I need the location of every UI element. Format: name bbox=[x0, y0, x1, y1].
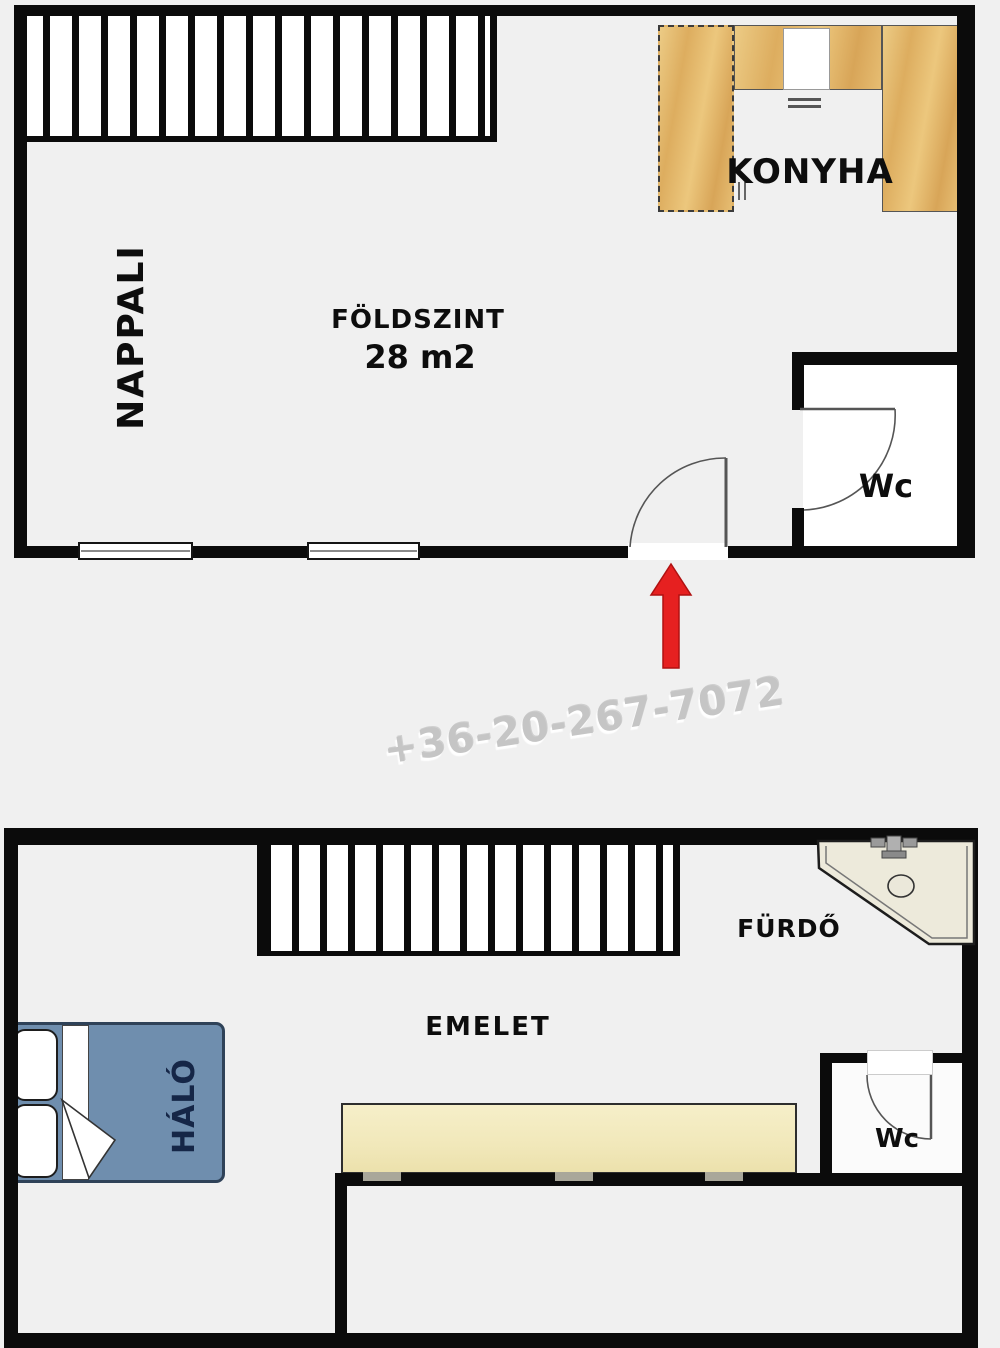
entrance-arrow bbox=[651, 564, 691, 668]
faucet-base bbox=[882, 851, 906, 858]
floor-label-ground: FÖLDSZINT bbox=[268, 305, 568, 335]
faucet-spout bbox=[887, 836, 901, 852]
room-label-bedroom: HÁLÓ bbox=[167, 1026, 203, 1186]
floor-area-ground: 28 m2 bbox=[270, 338, 570, 376]
floor-plan-image: NAPPALI FÖLDSZINT 28 m2 KONYHA Wc +36-20… bbox=[0, 0, 1000, 1348]
room-label-wc-upper: Wc bbox=[837, 1124, 957, 1154]
floor-label-upper: EMELET bbox=[358, 1012, 618, 1042]
faucet-handle bbox=[903, 838, 917, 847]
room-label-kitchen: KONYHA bbox=[690, 152, 930, 192]
faucet-handle bbox=[871, 838, 885, 847]
entrance-door-swing-arc bbox=[630, 458, 726, 547]
room-label-wc-ground: Wc bbox=[816, 467, 956, 505]
room-label-living: NAPPALI bbox=[112, 237, 152, 437]
bed-blanket-fold bbox=[62, 1100, 115, 1178]
room-label-bathroom: FÜRDŐ bbox=[689, 914, 889, 943]
bathtub-drain bbox=[888, 875, 914, 897]
